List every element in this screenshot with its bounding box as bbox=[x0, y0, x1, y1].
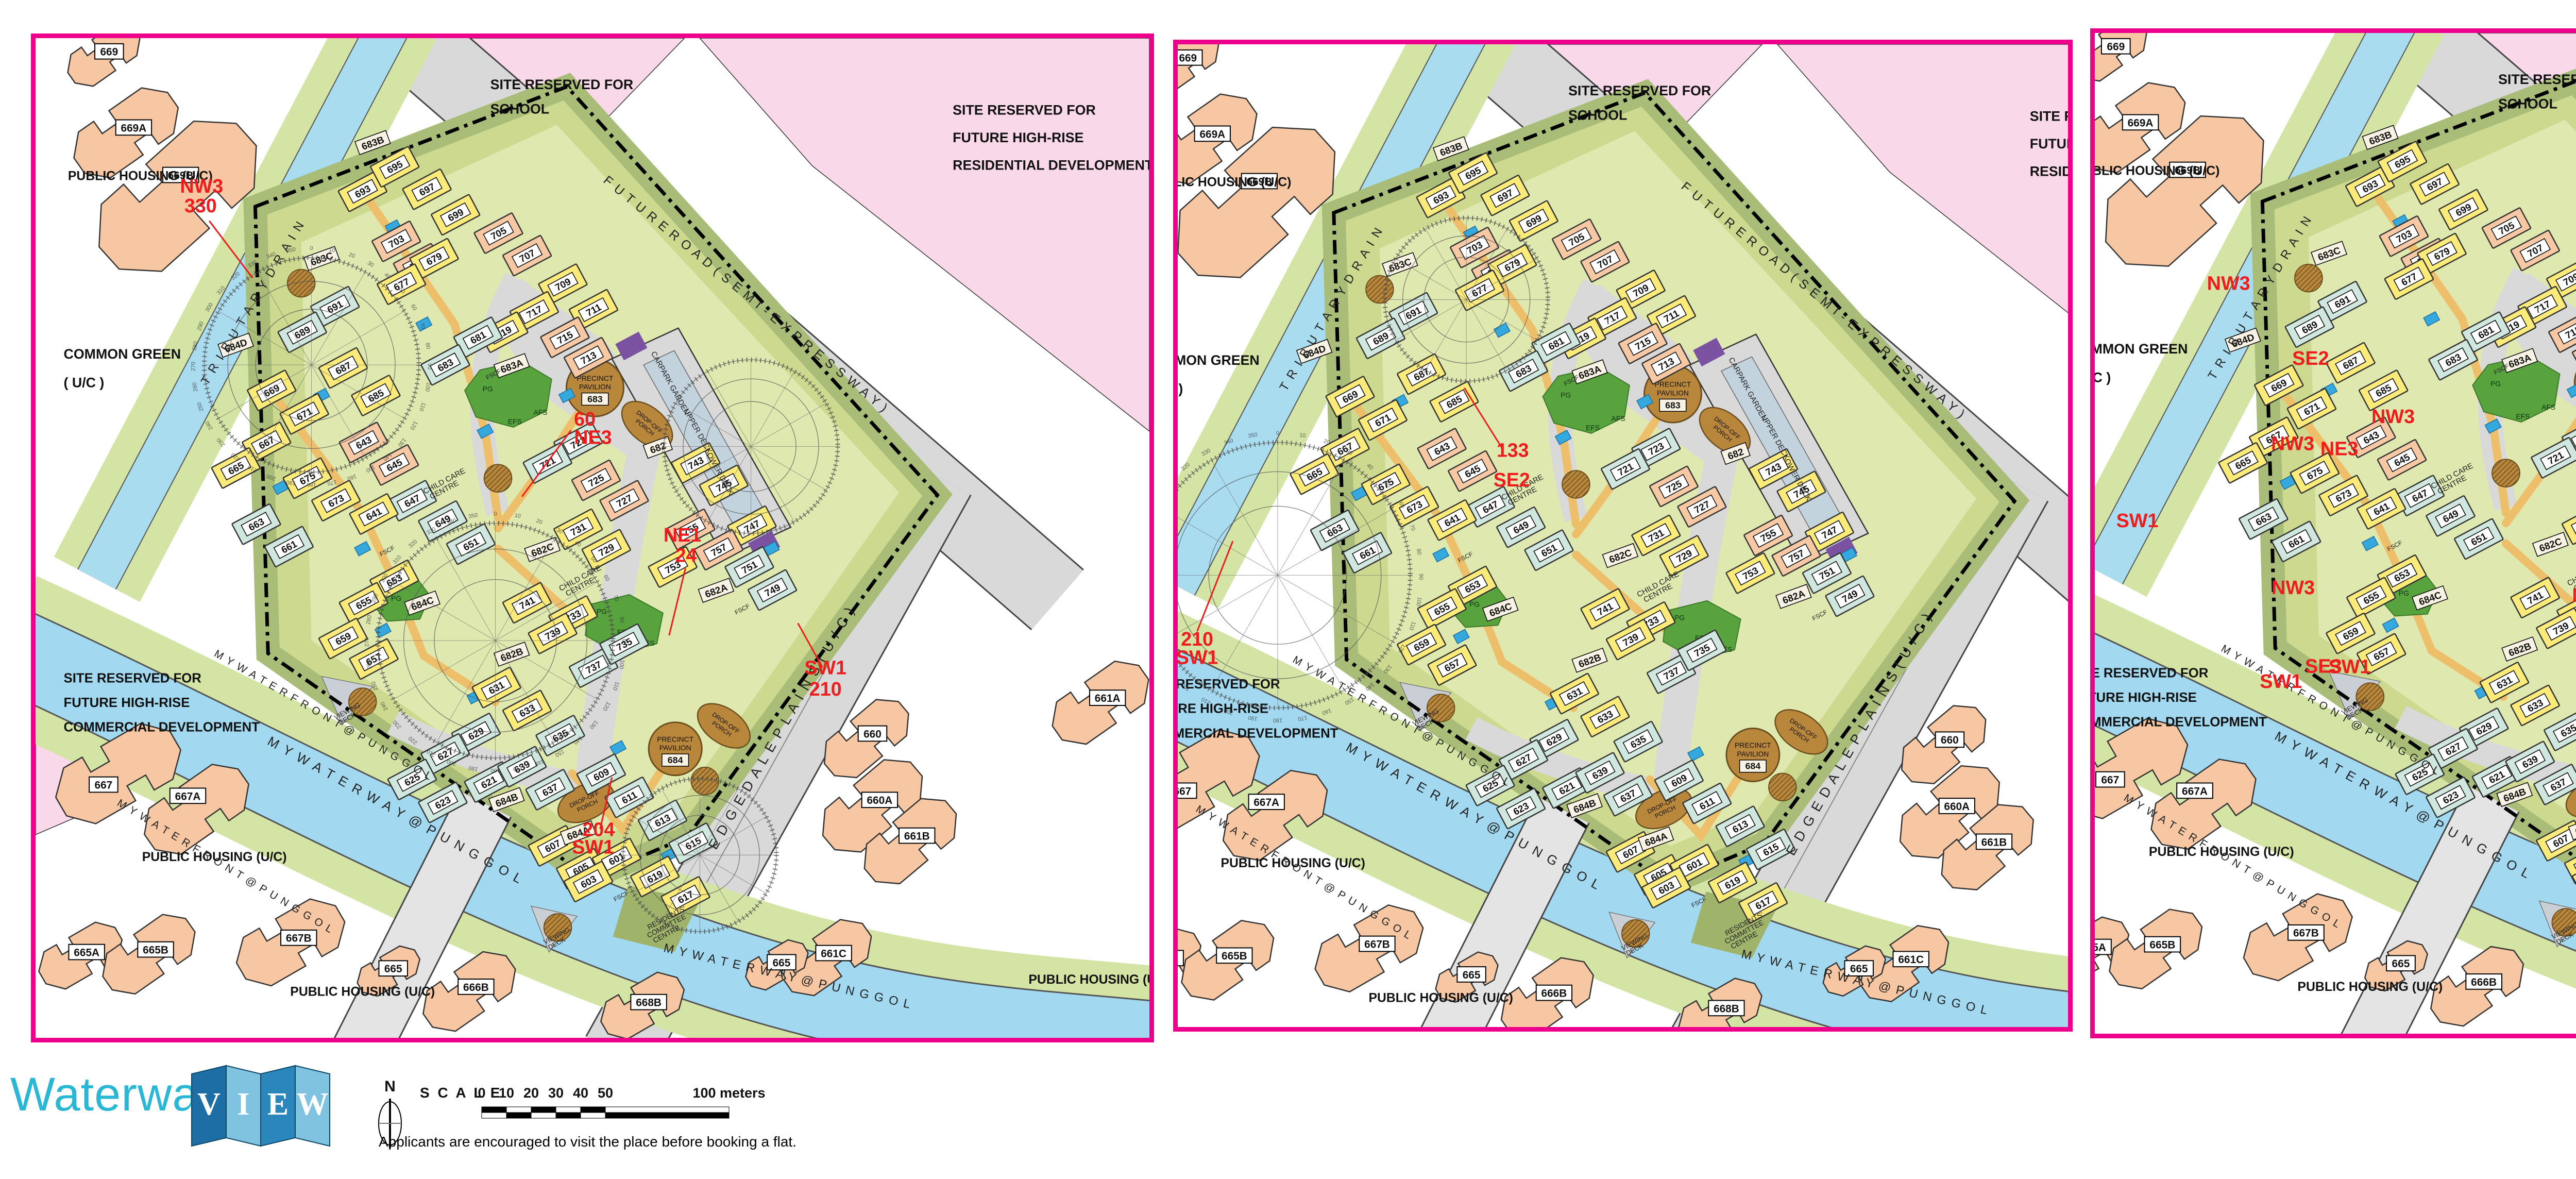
footer-legend: WaterwayVIEWNS C A L E01020304050100 met… bbox=[0, 1051, 876, 1179]
map-panel-1-svg: PGAFSEFSPGPGEFSAFSPRECINCTPAVILION683PRE… bbox=[36, 38, 1149, 1038]
svg-text:NE3: NE3 bbox=[2320, 437, 2359, 459]
svg-text:N: N bbox=[384, 1078, 396, 1095]
site-plan-panel-2: PGAFSEFSPGPGEFSAFSPRECINCTPAVILION683PRE… bbox=[1173, 40, 2073, 1032]
svg-text:EFS: EFS bbox=[508, 417, 522, 426]
svg-text:SCHOOL: SCHOOL bbox=[2498, 96, 2557, 112]
svg-text:10: 10 bbox=[499, 1085, 514, 1101]
svg-text:40: 40 bbox=[573, 1085, 588, 1101]
svg-text:0: 0 bbox=[310, 245, 313, 251]
svg-text:683: 683 bbox=[1665, 400, 1681, 410]
svg-text:667A: 667A bbox=[175, 790, 201, 802]
svg-text:684: 684 bbox=[1745, 761, 1761, 771]
map-panel-3-svg: PGAFSEFSPGPGEFSAFSPRECINCTPAVILION683PRE… bbox=[2095, 33, 2576, 1034]
svg-text:COMMERCIAL DEVELOPMENT: COMMERCIAL DEVELOPMENT bbox=[1178, 726, 1338, 740]
svg-text:NE1: NE1 bbox=[2572, 584, 2576, 606]
svg-text:133: 133 bbox=[1497, 439, 1529, 461]
svg-text:665: 665 bbox=[2392, 958, 2410, 970]
precinct-pavilion-684: PRECINCTPAVILION684 bbox=[1726, 728, 1780, 781]
svg-text:SITE RESERVED FOR: SITE RESERVED FOR bbox=[953, 103, 1096, 118]
svg-text:180: 180 bbox=[1273, 717, 1282, 723]
svg-text:AFS: AFS bbox=[2541, 403, 2555, 411]
svg-text:90: 90 bbox=[427, 363, 433, 369]
svg-text:660A: 660A bbox=[867, 795, 892, 806]
svg-text:FUTURE HIGH-RISE: FUTURE HIGH-RISE bbox=[64, 696, 190, 710]
svg-text:660A: 660A bbox=[1944, 801, 1970, 813]
svg-text:330: 330 bbox=[184, 195, 217, 216]
svg-text:PG: PG bbox=[391, 594, 401, 602]
svg-text:667B: 667B bbox=[286, 933, 312, 945]
svg-text:AFS: AFS bbox=[1612, 414, 1625, 423]
svg-text:669A: 669A bbox=[121, 122, 147, 134]
svg-text:PG: PG bbox=[1561, 391, 1571, 399]
svg-text:V: V bbox=[197, 1087, 221, 1122]
svg-text:660: 660 bbox=[863, 728, 882, 740]
svg-text:80: 80 bbox=[424, 342, 431, 349]
svg-text:666B: 666B bbox=[2471, 976, 2497, 988]
svg-text:661C: 661C bbox=[1898, 954, 1924, 966]
svg-text:NW3: NW3 bbox=[180, 175, 223, 197]
svg-text:667: 667 bbox=[2101, 774, 2119, 786]
svg-text:Applicants are encouraged to v: Applicants are encouraged to visit the p… bbox=[379, 1134, 796, 1150]
svg-text:PUBLIC HOUSING (U/C): PUBLIC HOUSING (U/C) bbox=[1368, 991, 1513, 1005]
svg-text:SW1: SW1 bbox=[2116, 510, 2159, 531]
svg-text:666B: 666B bbox=[463, 982, 489, 993]
svg-text:665A: 665A bbox=[74, 947, 99, 958]
svg-text:SCHOOL: SCHOOL bbox=[490, 102, 549, 117]
svg-text:90: 90 bbox=[621, 639, 627, 645]
svg-text:NE3: NE3 bbox=[574, 427, 612, 448]
svg-text:NW3: NW3 bbox=[2371, 406, 2415, 427]
svg-text:SITE RESERVED FOR: SITE RESERVED FOR bbox=[1568, 83, 1711, 98]
svg-text:FUTURE HIGH-RISE: FUTURE HIGH-RISE bbox=[953, 130, 1083, 145]
svg-text:0: 0 bbox=[478, 1085, 485, 1101]
svg-text:PRECINCT: PRECINCT bbox=[657, 735, 693, 743]
svg-text:PG: PG bbox=[483, 385, 493, 393]
svg-text:SW1: SW1 bbox=[2260, 670, 2302, 692]
svg-text:SW1: SW1 bbox=[572, 836, 614, 857]
svg-text:24: 24 bbox=[675, 545, 697, 566]
svg-text:NW3: NW3 bbox=[2271, 433, 2314, 454]
svg-text:665B: 665B bbox=[143, 945, 168, 956]
svg-text:PG: PG bbox=[1469, 600, 1480, 609]
svg-text:684: 684 bbox=[668, 755, 683, 765]
svg-text:NW3: NW3 bbox=[2272, 577, 2315, 598]
svg-text:COMMERCIAL DEVELOPMENT: COMMERCIAL DEVELOPMENT bbox=[64, 720, 260, 735]
svg-text:210: 210 bbox=[809, 678, 842, 700]
svg-text:667A: 667A bbox=[2182, 785, 2208, 797]
svg-text:669: 669 bbox=[1179, 53, 1197, 64]
svg-text:EFS: EFS bbox=[1586, 424, 1600, 432]
svg-text:668B: 668B bbox=[1714, 1003, 1739, 1015]
svg-text:667B: 667B bbox=[2293, 928, 2319, 939]
svg-text:PAVILION: PAVILION bbox=[579, 383, 611, 391]
svg-text:180: 180 bbox=[490, 767, 500, 773]
svg-text:661C: 661C bbox=[821, 948, 846, 959]
svg-text:669A: 669A bbox=[1199, 128, 1225, 140]
svg-text:RESIDENTIAL DEVELOPMENT: RESIDENTIAL DEVELOPMENT bbox=[953, 158, 1149, 173]
svg-text:666B: 666B bbox=[1541, 988, 1567, 1000]
svg-text:SW1: SW1 bbox=[804, 657, 846, 679]
svg-text:50: 50 bbox=[598, 1085, 613, 1101]
svg-text:665: 665 bbox=[384, 963, 402, 975]
svg-text:RESIDENTIAL DEVELOPMENT: RESIDENTIAL DEVELOPMENT bbox=[2030, 164, 2068, 179]
svg-text:PRECINCT: PRECINCT bbox=[577, 374, 614, 382]
svg-text:COMMON GREEN: COMMON GREEN bbox=[2095, 341, 2188, 357]
svg-text:665A: 665A bbox=[1178, 953, 1178, 965]
map-panel-2-svg: PGAFSEFSPGPGEFSAFSPRECINCTPAVILION683PRE… bbox=[1178, 44, 2068, 1027]
svg-text:( U/C ): ( U/C ) bbox=[64, 375, 105, 391]
svg-text:PUBLIC HOUSING (U/C): PUBLIC HOUSING (U/C) bbox=[2095, 164, 2219, 178]
svg-text:0: 0 bbox=[1276, 430, 1279, 436]
svg-text:667: 667 bbox=[95, 779, 113, 791]
svg-text:10: 10 bbox=[328, 247, 335, 254]
svg-text:COMMON GREEN: COMMON GREEN bbox=[64, 346, 181, 362]
site-plan-panel-3: PGAFSEFSPGPGEFSAFSPRECINCTPAVILION683PRE… bbox=[2090, 28, 2576, 1038]
svg-text:NW3: NW3 bbox=[2207, 272, 2250, 294]
svg-text:E: E bbox=[267, 1087, 289, 1122]
svg-text:FUTURE HIGH-RISE: FUTURE HIGH-RISE bbox=[2095, 690, 2197, 705]
site-plan-panel-1: PGAFSEFSPGPGEFSAFSPRECINCTPAVILION683PRE… bbox=[31, 33, 1154, 1042]
footer-svg: WaterwayVIEWNS C A L E01020304050100 met… bbox=[0, 1051, 876, 1179]
svg-text:EFS: EFS bbox=[2516, 412, 2530, 420]
svg-text:COMMERCIAL DEVELOPMENT: COMMERCIAL DEVELOPMENT bbox=[2095, 715, 2267, 730]
basemap: PGAFSEFSPGPGEFSAFSPRECINCTPAVILION683PRE… bbox=[1178, 44, 2068, 1027]
svg-text:SITE RESERVED FOR: SITE RESERVED FOR bbox=[64, 671, 202, 685]
svg-text:SE2: SE2 bbox=[1494, 469, 1530, 491]
svg-text:661A: 661A bbox=[1095, 693, 1121, 704]
svg-text:665A: 665A bbox=[2095, 942, 2106, 954]
svg-text:667B: 667B bbox=[1364, 938, 1390, 950]
svg-text:PUBLIC HOUSING (U/C): PUBLIC HOUSING (U/C) bbox=[1178, 175, 1291, 189]
svg-text:665B: 665B bbox=[2149, 939, 2175, 951]
svg-text:PUBLIC HOUSING (U/C): PUBLIC HOUSING (U/C) bbox=[2297, 980, 2443, 994]
svg-text:SITE RESERVED FOR: SITE RESERVED FOR bbox=[2030, 109, 2068, 124]
svg-text:180: 180 bbox=[307, 481, 316, 487]
svg-text:COMMON GREEN: COMMON GREEN bbox=[1178, 352, 1260, 368]
svg-text:80: 80 bbox=[1415, 548, 1422, 555]
svg-text:665: 665 bbox=[1463, 969, 1481, 981]
svg-text:80: 80 bbox=[618, 616, 625, 624]
precinct-pavilion-684: PRECINCTPAVILION684 bbox=[649, 722, 702, 776]
svg-text:665B: 665B bbox=[1222, 950, 1247, 962]
svg-text:PRECINCT: PRECINCT bbox=[1735, 741, 1771, 749]
svg-text:30: 30 bbox=[548, 1085, 564, 1101]
svg-text:661B: 661B bbox=[904, 831, 930, 843]
svg-text:PG: PG bbox=[597, 608, 607, 616]
svg-text:AFS: AFS bbox=[533, 408, 547, 416]
svg-text:669: 669 bbox=[100, 46, 118, 58]
svg-text:( U/C ): ( U/C ) bbox=[2095, 370, 2111, 385]
svg-text:SCHOOL: SCHOOL bbox=[1568, 108, 1627, 123]
svg-text:90: 90 bbox=[1418, 574, 1424, 580]
svg-text:PG: PG bbox=[1674, 613, 1685, 621]
svg-text:FUTURE HIGH-RISE: FUTURE HIGH-RISE bbox=[2030, 136, 2068, 151]
svg-text:PAVILION: PAVILION bbox=[659, 744, 691, 752]
svg-text:669A: 669A bbox=[2128, 117, 2154, 129]
svg-text:W: W bbox=[297, 1087, 329, 1122]
svg-text:( U/C ): ( U/C ) bbox=[1178, 381, 1183, 397]
svg-text:PUBLIC HOUSING (U/C): PUBLIC HOUSING (U/C) bbox=[290, 985, 435, 999]
svg-text:SW1: SW1 bbox=[1178, 647, 1218, 668]
svg-text:669: 669 bbox=[2107, 41, 2125, 53]
svg-text:20: 20 bbox=[523, 1085, 539, 1101]
basemap: PGAFSEFSPGPGEFSAFSPRECINCTPAVILION683PRE… bbox=[2095, 33, 2576, 1034]
svg-text:PRECINCT: PRECINCT bbox=[1655, 380, 1691, 389]
svg-text:S C A L E: S C A L E bbox=[420, 1085, 502, 1101]
svg-text:10: 10 bbox=[1299, 432, 1306, 439]
svg-text:667: 667 bbox=[1178, 785, 1191, 797]
svg-text:PG: PG bbox=[2490, 380, 2501, 388]
svg-text:100 meters: 100 meters bbox=[692, 1085, 765, 1101]
svg-text:270: 270 bbox=[190, 362, 196, 371]
svg-text:SITE RESERVED FOR: SITE RESERVED FOR bbox=[2498, 72, 2576, 87]
svg-text:10: 10 bbox=[514, 512, 521, 519]
svg-text:SW1: SW1 bbox=[2329, 656, 2371, 678]
svg-text:SITE RESERVED FOR: SITE RESERVED FOR bbox=[490, 77, 634, 92]
svg-text:SITE RESERVED FOR: SITE RESERVED FOR bbox=[2095, 666, 2209, 680]
svg-text:NE1: NE1 bbox=[664, 524, 701, 546]
svg-text:I: I bbox=[237, 1087, 249, 1122]
svg-text:660: 660 bbox=[1941, 734, 1959, 746]
svg-text:FUTURE HIGH-RISE: FUTURE HIGH-RISE bbox=[1178, 702, 1268, 716]
svg-text:270: 270 bbox=[364, 637, 370, 647]
svg-text:PUBLIC HOUSING (U/C): PUBLIC HOUSING (U/C) bbox=[1028, 973, 1149, 987]
svg-text:SE2: SE2 bbox=[2292, 347, 2329, 369]
svg-text:667A: 667A bbox=[1253, 797, 1279, 809]
svg-text:0: 0 bbox=[494, 511, 497, 517]
svg-text:668B: 668B bbox=[636, 997, 662, 1009]
svg-text:PG: PG bbox=[2399, 589, 2409, 597]
svg-text:683: 683 bbox=[587, 394, 603, 404]
svg-text:PAVILION: PAVILION bbox=[1737, 750, 1769, 758]
svg-text:PAVILION: PAVILION bbox=[1657, 389, 1689, 397]
svg-text:661B: 661B bbox=[1981, 836, 2007, 848]
